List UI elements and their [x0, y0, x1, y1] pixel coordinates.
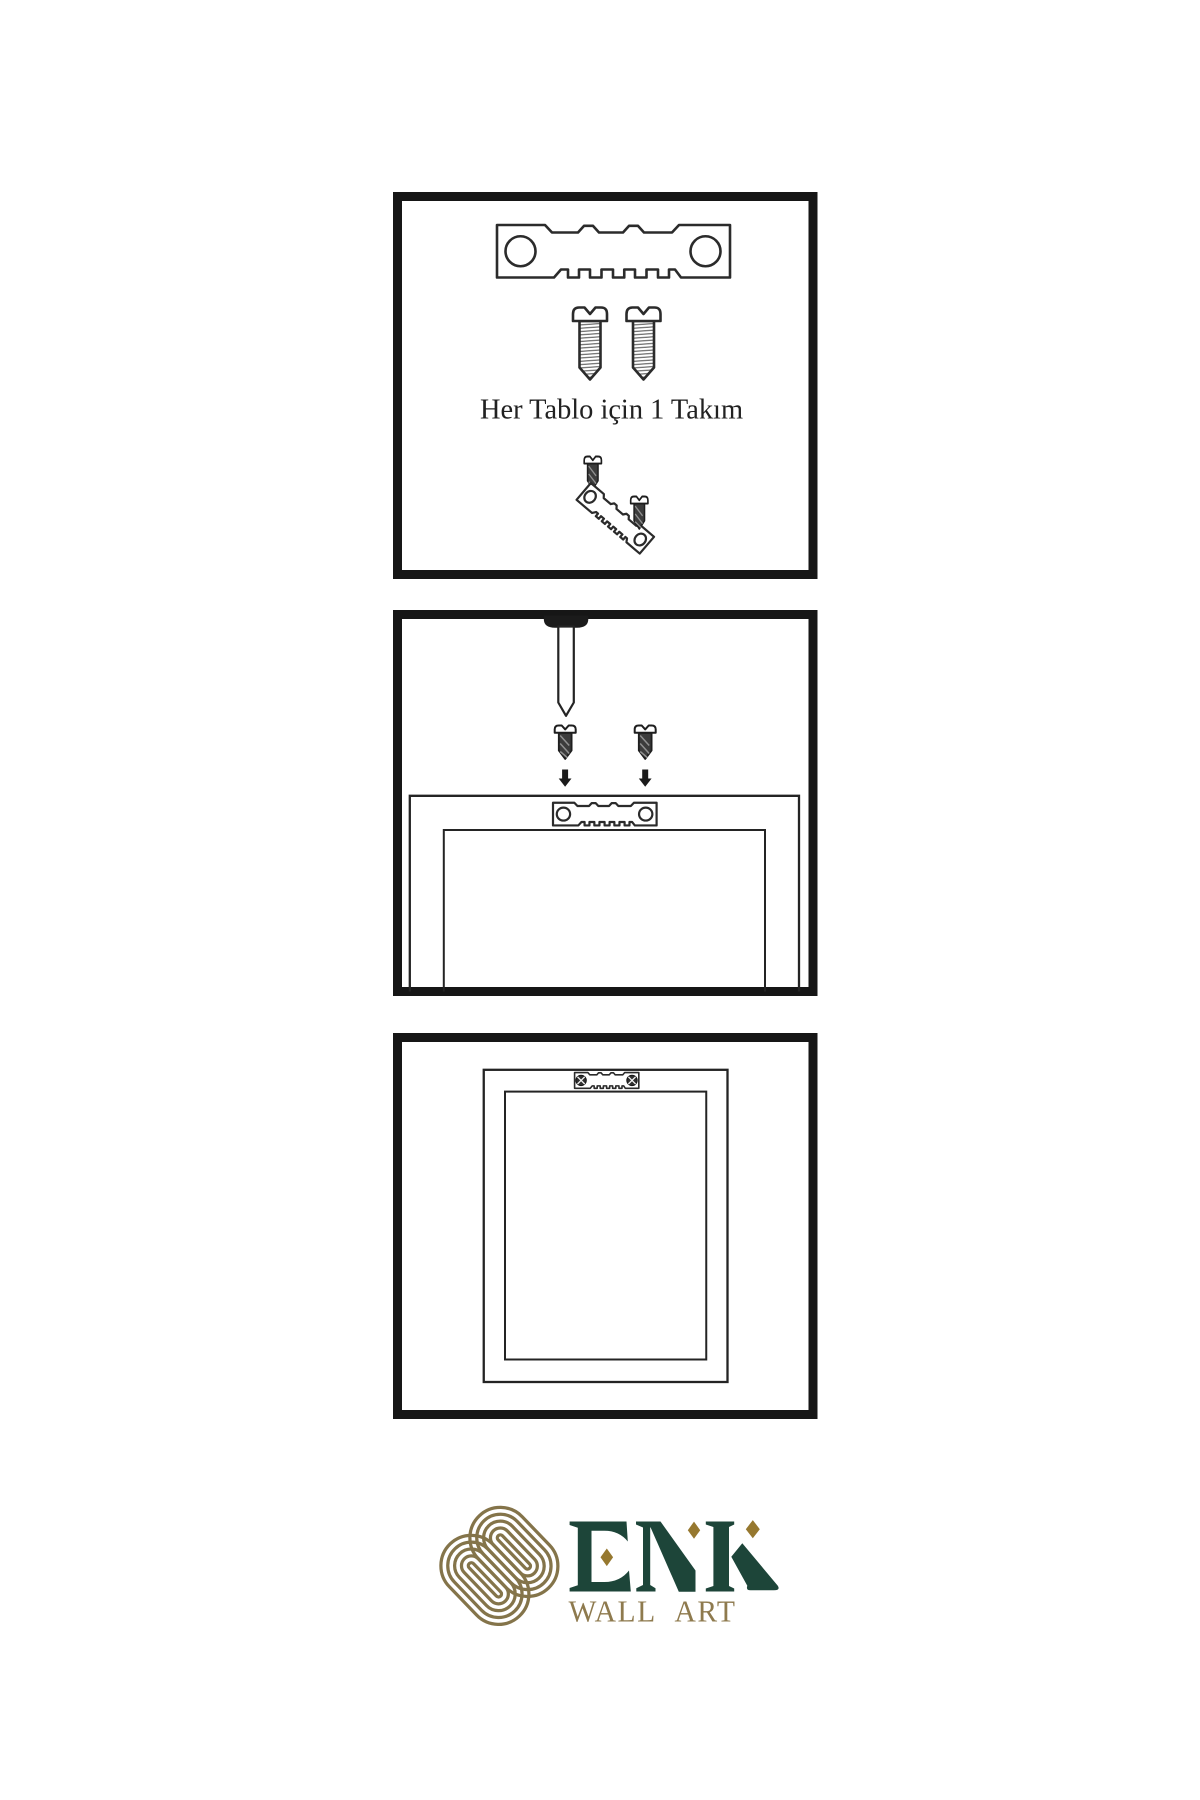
svg-text:Her Tablo için 1 Takım: Her Tablo için 1 Takım: [480, 395, 743, 426]
svg-text:WALL ART: WALL ART: [569, 1594, 737, 1629]
